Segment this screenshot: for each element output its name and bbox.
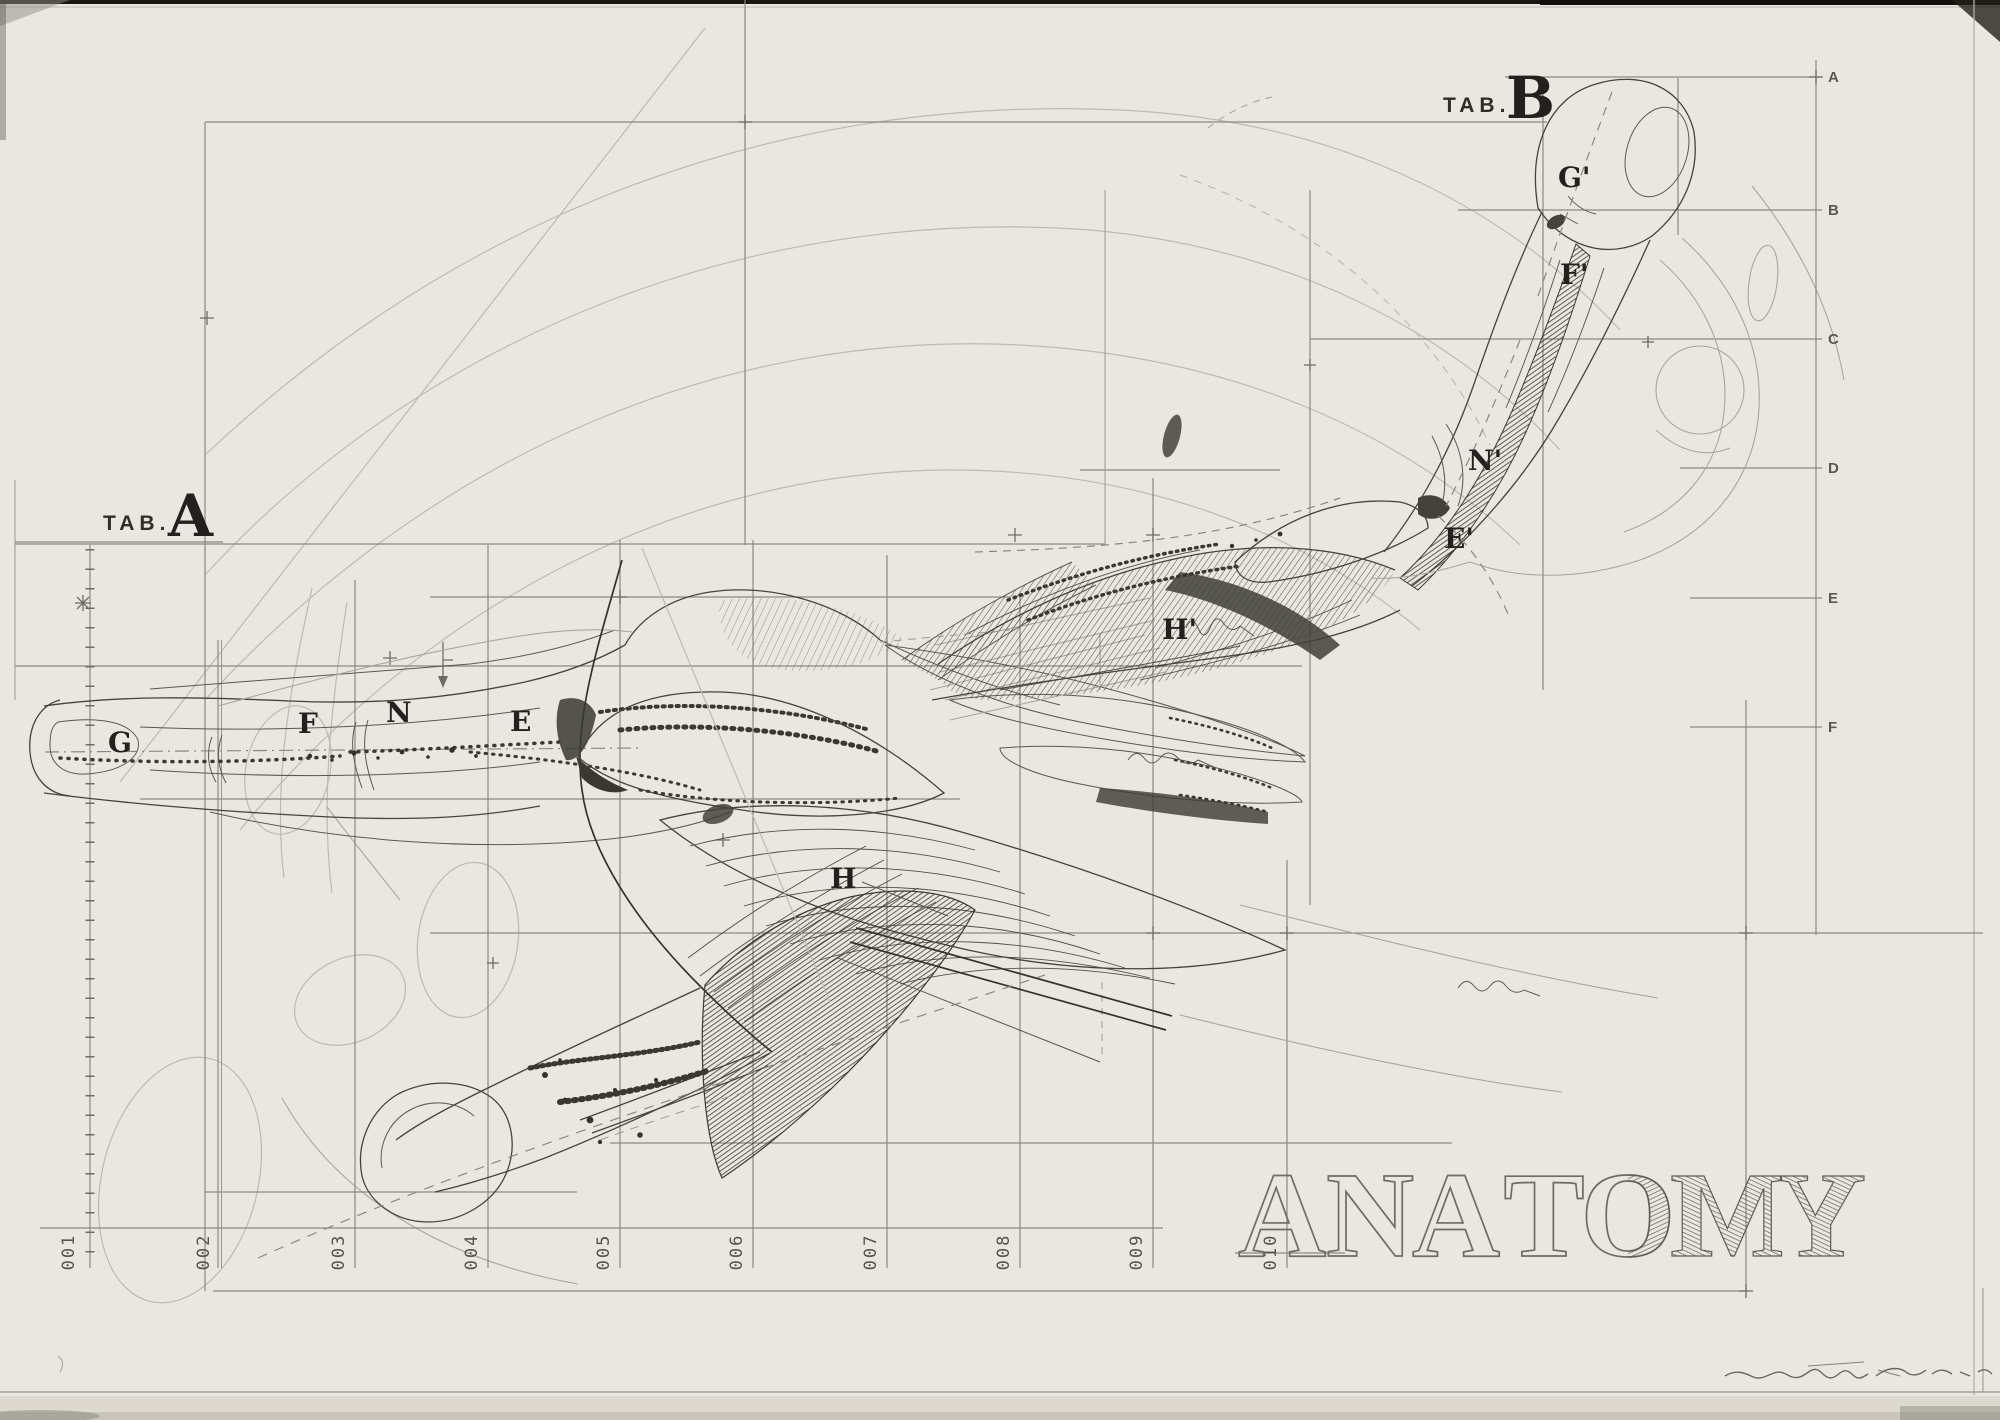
bottom-scale-005: 005 [594,1234,614,1271]
bottom-scale-008: 008 [994,1234,1014,1271]
tab-a-prefix: TAB. [103,512,170,535]
bottom-scale-006: 006 [727,1234,747,1271]
right-scale-d: D [1828,460,1840,477]
right-scale-c: C [1828,331,1840,348]
bottom-scale-001: 001 [59,1234,79,1271]
anatomy-stencil-title: A N A T O O M Y [1238,1148,1866,1283]
right-scale-e: E [1828,590,1839,607]
bottom-scale-007: 007 [861,1234,881,1271]
bottom-scale-009: 009 [1127,1234,1147,1271]
tab-b-figure [880,79,1782,700]
tab-a-letter: A [167,482,214,550]
right-scale-a: A [1828,69,1840,86]
part-label-g-prime: G' [1558,161,1590,194]
bottom-scale: 001 002 003 004 005 006 007 008 009 010 [59,1234,1281,1271]
bottom-scale-003: 003 [329,1234,349,1271]
part-label-n-prime: N' [1468,444,1502,477]
part-label-e: E [510,705,531,738]
pencil-ghost-marks [58,588,528,1372]
anatomical-plate: TAB. A TAB. B G F N E H G' F' N' E' H' A… [0,0,2000,1420]
plate-drawing: TAB. A TAB. B G F N E H G' F' N' E' H' A… [0,0,2000,1420]
right-scale: A B C D E F [1828,69,1840,736]
bottom-scale-004: 004 [462,1234,482,1271]
anatomy-letter-4: T [1503,1148,1584,1283]
part-label-f-prime: F' [1560,258,1588,291]
anatomy-letter-1: A [1238,1148,1326,1283]
tab-b-letter: B [1506,64,1555,132]
anatomy-letter-6-mirrored: M [1668,1148,1783,1283]
part-label-h-prime: H' [1162,613,1197,646]
right-scale-b: B [1828,202,1840,219]
part-label-f: F [298,707,318,740]
part-label-n: N [386,696,412,729]
tab-b-prefix: TAB. [1443,94,1510,117]
part-label-e-prime: E' [1444,522,1474,555]
part-label-h: H [830,862,856,895]
right-scale-f: F [1828,719,1838,736]
anatomy-letter-2: N [1326,1148,1414,1283]
tab-a-title: TAB. A [103,482,214,550]
anatomy-letter-3: A [1412,1148,1500,1283]
artist-signature [1725,1362,1992,1378]
bottom-scale-002: 002 [194,1234,214,1271]
part-label-g: G [108,726,132,759]
anatomy-letter-7-mirrored: Y [1778,1148,1866,1283]
